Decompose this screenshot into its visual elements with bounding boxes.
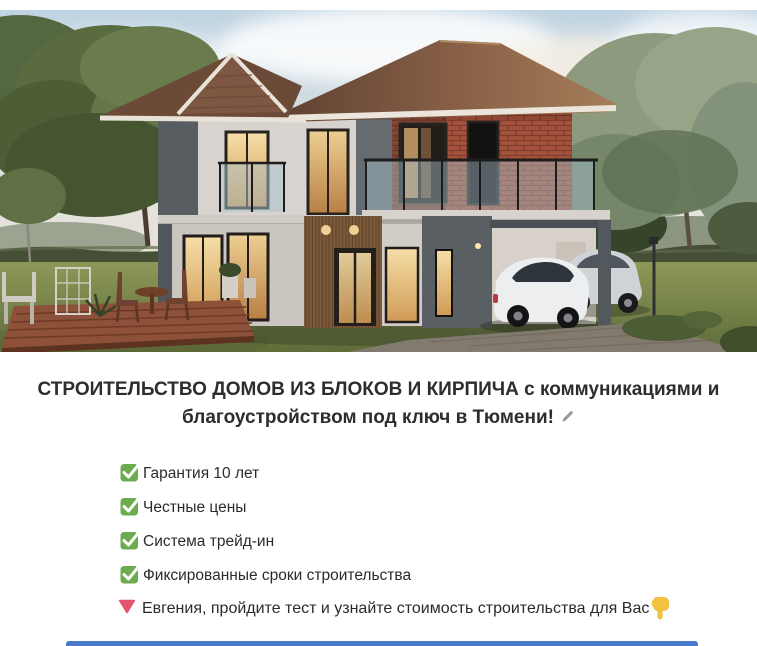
cta-text: Евгения, пройдите тест и узнайте стоимос… xyxy=(142,600,649,618)
pointing-down-icon xyxy=(650,596,670,625)
quiz-widget-edge[interactable] xyxy=(66,641,698,646)
check-icon xyxy=(120,495,141,521)
headline-section: СТРОИТЕЛЬСТВО ДОМОВ ИЗ БЛОКОВ И КИРПИЧА … xyxy=(0,376,757,433)
hero-house-image xyxy=(0,10,757,352)
list-item-label: Система трейд-ин xyxy=(143,533,274,551)
list-item-label: Гарантия 10 лет xyxy=(143,465,259,483)
check-icon xyxy=(120,529,141,555)
pencil-icon[interactable] xyxy=(559,406,575,434)
cta-line: Евгения, пройдите тест и узнайте стоимос… xyxy=(118,592,670,625)
list-item-label: Фиксированные сроки строительства xyxy=(143,567,411,585)
landing-page: СТРОИТЕЛЬСТВО ДОМОВ ИЗ БЛОКОВ И КИРПИЧА … xyxy=(0,0,757,646)
page-title-text: СТРОИТЕЛЬСТВО ДОМОВ ИЗ БЛОКОВ И КИРПИЧА … xyxy=(38,379,720,428)
page-title: СТРОИТЕЛЬСТВО ДОМОВ ИЗ БЛОКОВ И КИРПИЧА … xyxy=(26,376,732,433)
red-triangle-down-icon xyxy=(118,598,136,620)
list-item: Гарантия 10 лет xyxy=(120,461,411,487)
benefits-checklist: Гарантия 10 лет Честные цены Система тре… xyxy=(120,461,411,597)
carport-pillar xyxy=(598,220,611,332)
list-item-label: Честные цены xyxy=(143,499,246,517)
list-item: Фиксированные сроки строительства xyxy=(120,563,411,589)
check-icon xyxy=(120,563,141,589)
list-item: Честные цены xyxy=(120,495,411,521)
list-item: Система трейд-ин xyxy=(120,529,411,555)
check-icon xyxy=(120,461,141,487)
